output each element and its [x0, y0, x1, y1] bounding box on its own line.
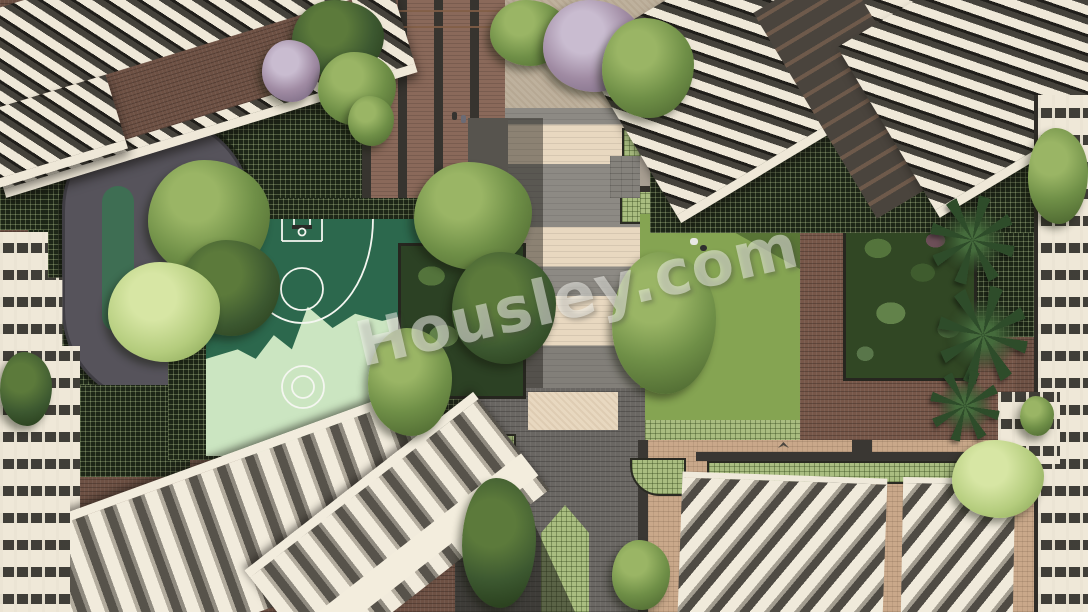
pedestrian — [452, 112, 457, 120]
person-sitting — [690, 238, 698, 245]
pedestrian — [461, 115, 466, 123]
center-circle-outer — [282, 366, 324, 408]
tree — [1020, 396, 1054, 436]
tree — [108, 262, 220, 362]
free-throw-circle — [281, 268, 323, 310]
building-corner-bottom-left — [0, 495, 70, 612]
key-lines — [282, 219, 322, 241]
flowering-tree — [262, 40, 320, 102]
tree — [952, 440, 1044, 518]
palm-tree — [930, 195, 1015, 285]
tree — [602, 18, 694, 118]
person-sitting — [700, 245, 707, 251]
tree — [0, 352, 52, 426]
tree — [348, 96, 394, 146]
tree — [452, 252, 556, 364]
tree — [612, 540, 670, 610]
center-circle-inner — [292, 376, 314, 398]
hoop — [299, 229, 306, 236]
tree — [368, 328, 452, 436]
tree — [612, 252, 716, 394]
aerial-render: Housley.com — [0, 0, 1088, 612]
tree — [1028, 128, 1088, 224]
apartment-slab-bottom-right-1 — [678, 471, 888, 612]
walkway-landing — [528, 392, 618, 430]
palm-tree — [938, 285, 1028, 385]
tree — [462, 478, 536, 608]
palm-tree — [930, 370, 1000, 442]
